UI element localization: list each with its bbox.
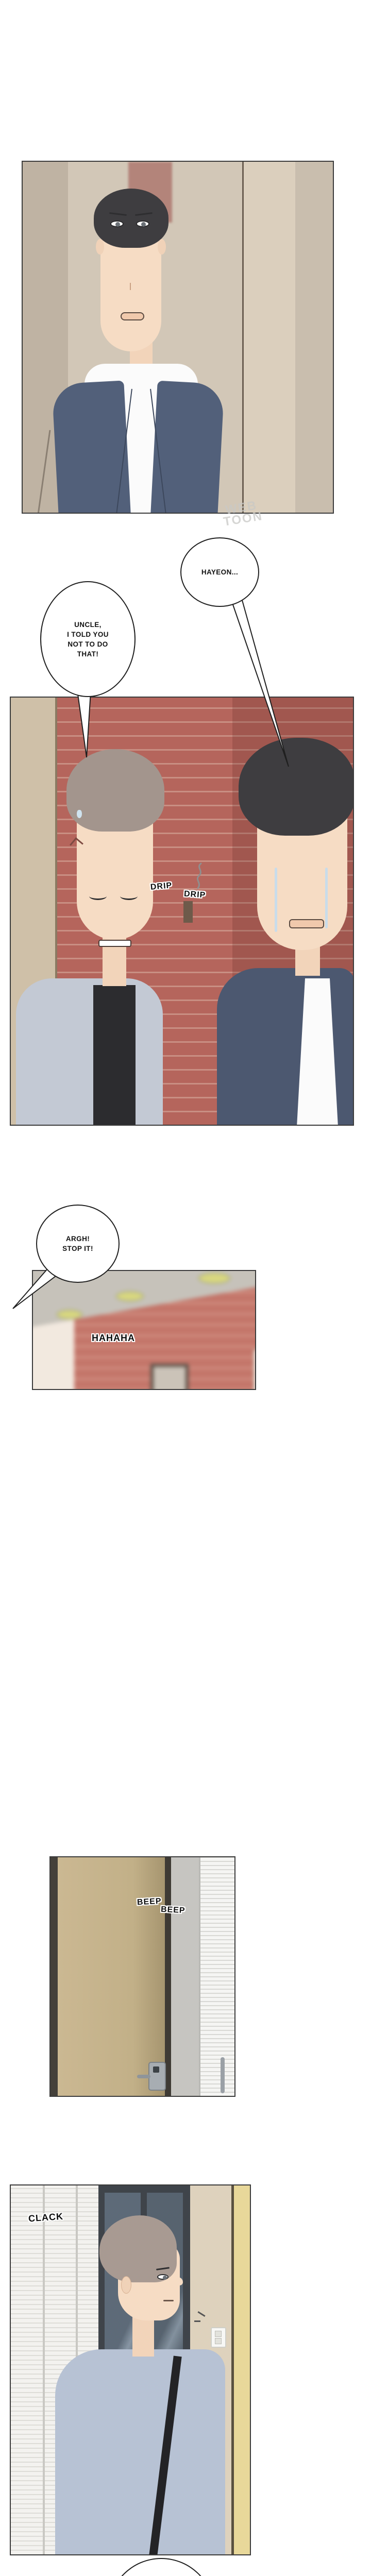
mouth [121,312,144,320]
webtoon-page: WEB TOON HAYEON... UNCLE, I TOLD YOU NOT… [0,0,371,2576]
sweat-drop-icon [77,810,82,818]
door-lever[interactable] [137,2075,150,2078]
closed-eye-left [89,892,107,900]
tear-right [325,868,328,928]
motion-tick-2 [194,2320,200,2322]
blurred-cafe-scene [32,1270,256,1390]
panel-5: CLACK [10,2184,251,2555]
louver-panel [199,1857,235,2096]
shutter-rail [43,2185,45,2554]
tee [93,985,136,1126]
bubble-tail-hayeon [227,592,296,770]
sfx-hahaha: HAHAHA [92,1333,135,1344]
panel-3: HAHAHA [32,1270,256,1390]
bubble-text: HAYEON... [201,567,238,577]
crying-mouth [289,919,324,928]
bubble-text: UNCLE, I TOLD YOU NOT TO DO THAT! [67,620,109,659]
ear-left [96,239,104,255]
right-wall [295,162,334,513]
gritted-mouth [98,940,131,947]
speech-bubble-argh: ARGH! STOP IT! [36,1205,120,1283]
tear-left [275,868,277,932]
left-frame-strip [50,1857,58,2096]
door-frame-strip [165,1857,171,2096]
ceiling-light-2 [115,1291,144,1302]
light-switch[interactable] [211,2327,226,2348]
ceiling-light-1 [198,1272,231,1284]
door [58,1857,165,2096]
hair [94,189,168,248]
shirt [55,2349,225,2555]
speech-bubble-uncle-told: UNCLE, I TOLD YOU NOT TO DO THAT! [40,581,136,697]
bubble-text: ARGH! STOP IT! [62,1234,93,1253]
yellow-door [231,2185,251,2554]
ear-right [158,239,166,255]
louver-handle [221,2057,225,2093]
eye-left [110,221,124,227]
panel-1 [22,161,334,514]
eye [157,2274,168,2280]
poster [254,1349,256,1390]
speech-bubble-did-you-take: DID YOU TAKE HAYEON HOME? [107,2558,215,2576]
window [150,1364,189,1390]
panel-4: BEEP BEEP [49,1856,235,2097]
sfx-drip-1: DRIP [150,881,173,892]
keypad-lock[interactable] [148,2062,166,2091]
sfx-beep-2: BEEP [161,1905,185,1916]
blazer-right [150,381,224,514]
pillar [244,162,295,513]
nose-tip [175,2277,183,2285]
closed-eye-right [120,892,138,900]
mouth-line [163,2300,174,2301]
eye-right [136,221,149,227]
neck [132,2315,154,2357]
sfx-drip-2: DRIP [183,890,206,901]
jacket [16,978,163,1126]
keypad-screen [153,2066,159,2073]
speech-bubble-hayeon: HAYEON... [180,537,259,607]
webtoon-watermark: WEB TOON [219,499,265,529]
ear [121,2276,131,2294]
sfx-beep-1: BEEP [137,1897,162,1907]
sob-squiggle-icon [194,862,205,889]
nose-line [130,283,131,290]
panel-2: DRIP DRIP [10,697,354,1126]
hair [99,2215,177,2282]
small-frame [183,901,193,923]
gray-wall [171,1857,199,2096]
